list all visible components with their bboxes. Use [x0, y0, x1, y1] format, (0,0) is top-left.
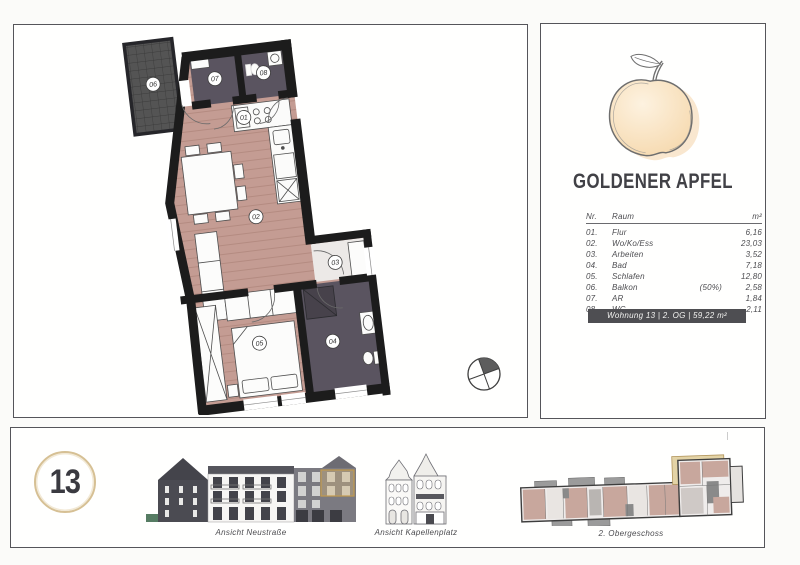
- room-label-06: 06: [149, 81, 158, 89]
- table-header: Nr. Raum m²: [586, 212, 762, 224]
- north-compass-icon: [468, 358, 500, 390]
- green-annex: [146, 514, 158, 522]
- building-strip: [520, 454, 744, 526]
- table-row: 07.AR1,84: [586, 293, 762, 304]
- project-title-text: GOLDENER APFEL: [573, 170, 733, 194]
- left-facade: [386, 460, 412, 524]
- col-raum: Raum: [612, 212, 690, 221]
- room-label-02: 02: [252, 214, 261, 222]
- table-row: 06.Balkon(50%)2,58: [586, 282, 762, 293]
- neustrasse-elevation: [146, 454, 356, 529]
- nightstand: [227, 384, 238, 397]
- table-row: 01.Flur6,16: [586, 227, 762, 238]
- info-panel: GOLDENER APFEL Nr. Raum m² 01.Flur6,16 0…: [540, 23, 766, 419]
- washing-machine: [267, 50, 283, 66]
- table-row: 02.Wo/Ko/Ess23,03: [586, 238, 762, 249]
- table-row: 03.Arbeiten3,52: [586, 249, 762, 260]
- right-building: [294, 456, 356, 522]
- apartment-floor-plan: 01 02 03 04 05 06 07 08: [14, 25, 525, 415]
- apple-icon: [597, 50, 709, 162]
- col-nr: Nr.: [586, 212, 612, 221]
- project-title: GOLDENER APFEL: [541, 170, 765, 194]
- kapellenplatz-elevation: [384, 452, 448, 531]
- room-label-04: 04: [329, 338, 338, 346]
- apartment-summary-badge: Wohnung 13 | 2. OG | 59,22 m²: [588, 309, 746, 323]
- right-block: [678, 458, 744, 516]
- middle-building: [208, 466, 294, 522]
- room-label-01: 01: [240, 114, 249, 122]
- room-label-03: 03: [331, 259, 340, 267]
- apple-logo: [597, 50, 709, 162]
- unit-number-circle: 13: [34, 451, 96, 513]
- site-plan-label: 2. Obergeschoss: [551, 529, 711, 538]
- room-area-table: Nr. Raum m² 01.Flur6,16 02.Wo/Ko/Ess23,0…: [586, 212, 762, 315]
- table-row: 05.Schlafen12,80: [586, 271, 762, 282]
- room-label-08: 08: [259, 70, 268, 78]
- scan-fold-mark: [727, 432, 728, 440]
- kapellenplatz-label: Ansicht Kapellenplatz: [361, 528, 471, 537]
- dark-gabled-building: [158, 458, 208, 522]
- footer-panel: 13: [10, 427, 765, 548]
- unit-number: 13: [50, 453, 80, 511]
- apple-body: [610, 80, 692, 156]
- apartment-plan-rotated: 01 02 03 04 05 06 07 08: [124, 25, 392, 415]
- room-label-05: 05: [255, 340, 264, 348]
- floor-plan-panel: 01 02 03 04 05 06 07 08: [13, 24, 528, 418]
- neustrasse-label: Ansicht Neustraße: [146, 528, 356, 537]
- col-area: m²: [722, 212, 762, 221]
- site-plan-2og: [517, 454, 747, 531]
- unit-13-highlight: [321, 470, 354, 496]
- table-row: 04.Bad7,18: [586, 260, 762, 271]
- right-facade: [414, 454, 446, 524]
